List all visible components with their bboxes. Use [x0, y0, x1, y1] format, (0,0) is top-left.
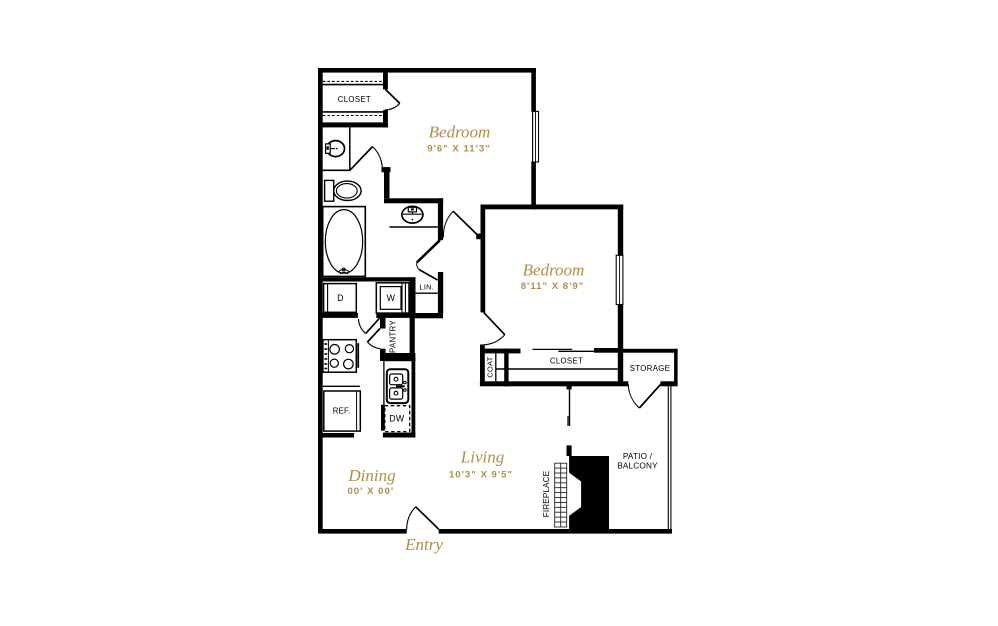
svg-text:COAT: COAT — [486, 356, 495, 377]
svg-text:9'6" X 11'3": 9'6" X 11'3" — [427, 143, 491, 154]
svg-text:Bedroom: Bedroom — [429, 123, 491, 142]
svg-text:CLOSET: CLOSET — [338, 95, 371, 104]
svg-text:PATIO /: PATIO / — [623, 452, 653, 461]
svg-text:Entry: Entry — [404, 535, 443, 554]
svg-text:Dining: Dining — [347, 466, 395, 485]
svg-text:D: D — [337, 293, 343, 303]
svg-text:FIREPLACE: FIREPLACE — [542, 470, 551, 517]
svg-text:REF.: REF. — [333, 407, 351, 416]
svg-text:10'3" X 9'5": 10'3" X 9'5" — [449, 470, 513, 481]
svg-text:DW: DW — [389, 414, 405, 424]
svg-text:PANTRY: PANTRY — [388, 320, 397, 353]
svg-text:W: W — [387, 293, 396, 303]
svg-text:8'11" X 8'9": 8'11" X 8'9" — [521, 281, 585, 292]
svg-text:STORAGE: STORAGE — [630, 364, 670, 373]
svg-text:BALCONY: BALCONY — [617, 462, 658, 471]
svg-text:LIN.: LIN. — [419, 283, 434, 292]
svg-text:Living: Living — [460, 448, 504, 467]
svg-text:CLOSET: CLOSET — [550, 356, 583, 365]
svg-text:00' X 00': 00' X 00' — [347, 486, 394, 497]
svg-text:Bedroom: Bedroom — [523, 261, 585, 280]
